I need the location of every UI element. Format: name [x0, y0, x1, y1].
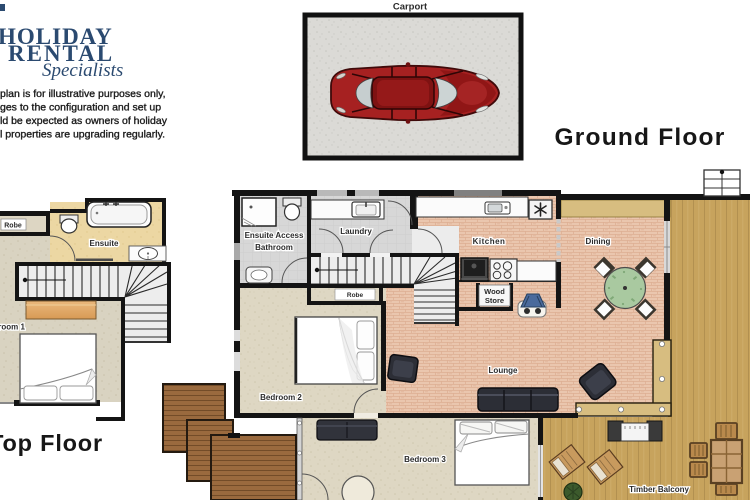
svg-text:Ensuite Access: Ensuite Access	[245, 231, 304, 240]
svg-text:Bedroom 1: Bedroom 1	[0, 323, 25, 332]
svg-text:l properties are upgrading reg: l properties are upgrading regularly.	[0, 129, 165, 141]
svg-text:Bathroom: Bathroom	[255, 243, 293, 252]
svg-text:Bedroom 3: Bedroom 3	[404, 455, 446, 464]
svg-text:Specialists: Specialists	[42, 60, 123, 81]
svg-text:Dining: Dining	[586, 237, 611, 246]
svg-text:Timber Balcony: Timber Balcony	[629, 485, 689, 494]
svg-text:Store: Store	[485, 296, 504, 305]
svg-text:Ground Floor: Ground Floor	[555, 124, 726, 151]
svg-text:Top Floor: Top Floor	[0, 430, 103, 456]
svg-text:plan is for illustrative purpo: plan is for illustrative purposes only,	[0, 88, 166, 100]
svg-text:Bedroom 2: Bedroom 2	[260, 393, 302, 402]
svg-text:Ensuite: Ensuite	[90, 239, 119, 248]
svg-text:Wood: Wood	[484, 287, 505, 296]
svg-text:Robe: Robe	[347, 292, 364, 299]
svg-text:Carport: Carport	[393, 2, 428, 13]
svg-text:Lounge: Lounge	[489, 366, 518, 375]
svg-text:ld be expected as owners of ho: ld be expected as owners of holiday	[0, 115, 168, 127]
svg-text:Laundry: Laundry	[340, 227, 372, 236]
svg-text:Robe: Robe	[4, 223, 22, 230]
svg-text:Kitchen: Kitchen	[473, 237, 506, 246]
svg-text:ges to the configuration and s: ges to the configuration and set up	[0, 102, 161, 114]
